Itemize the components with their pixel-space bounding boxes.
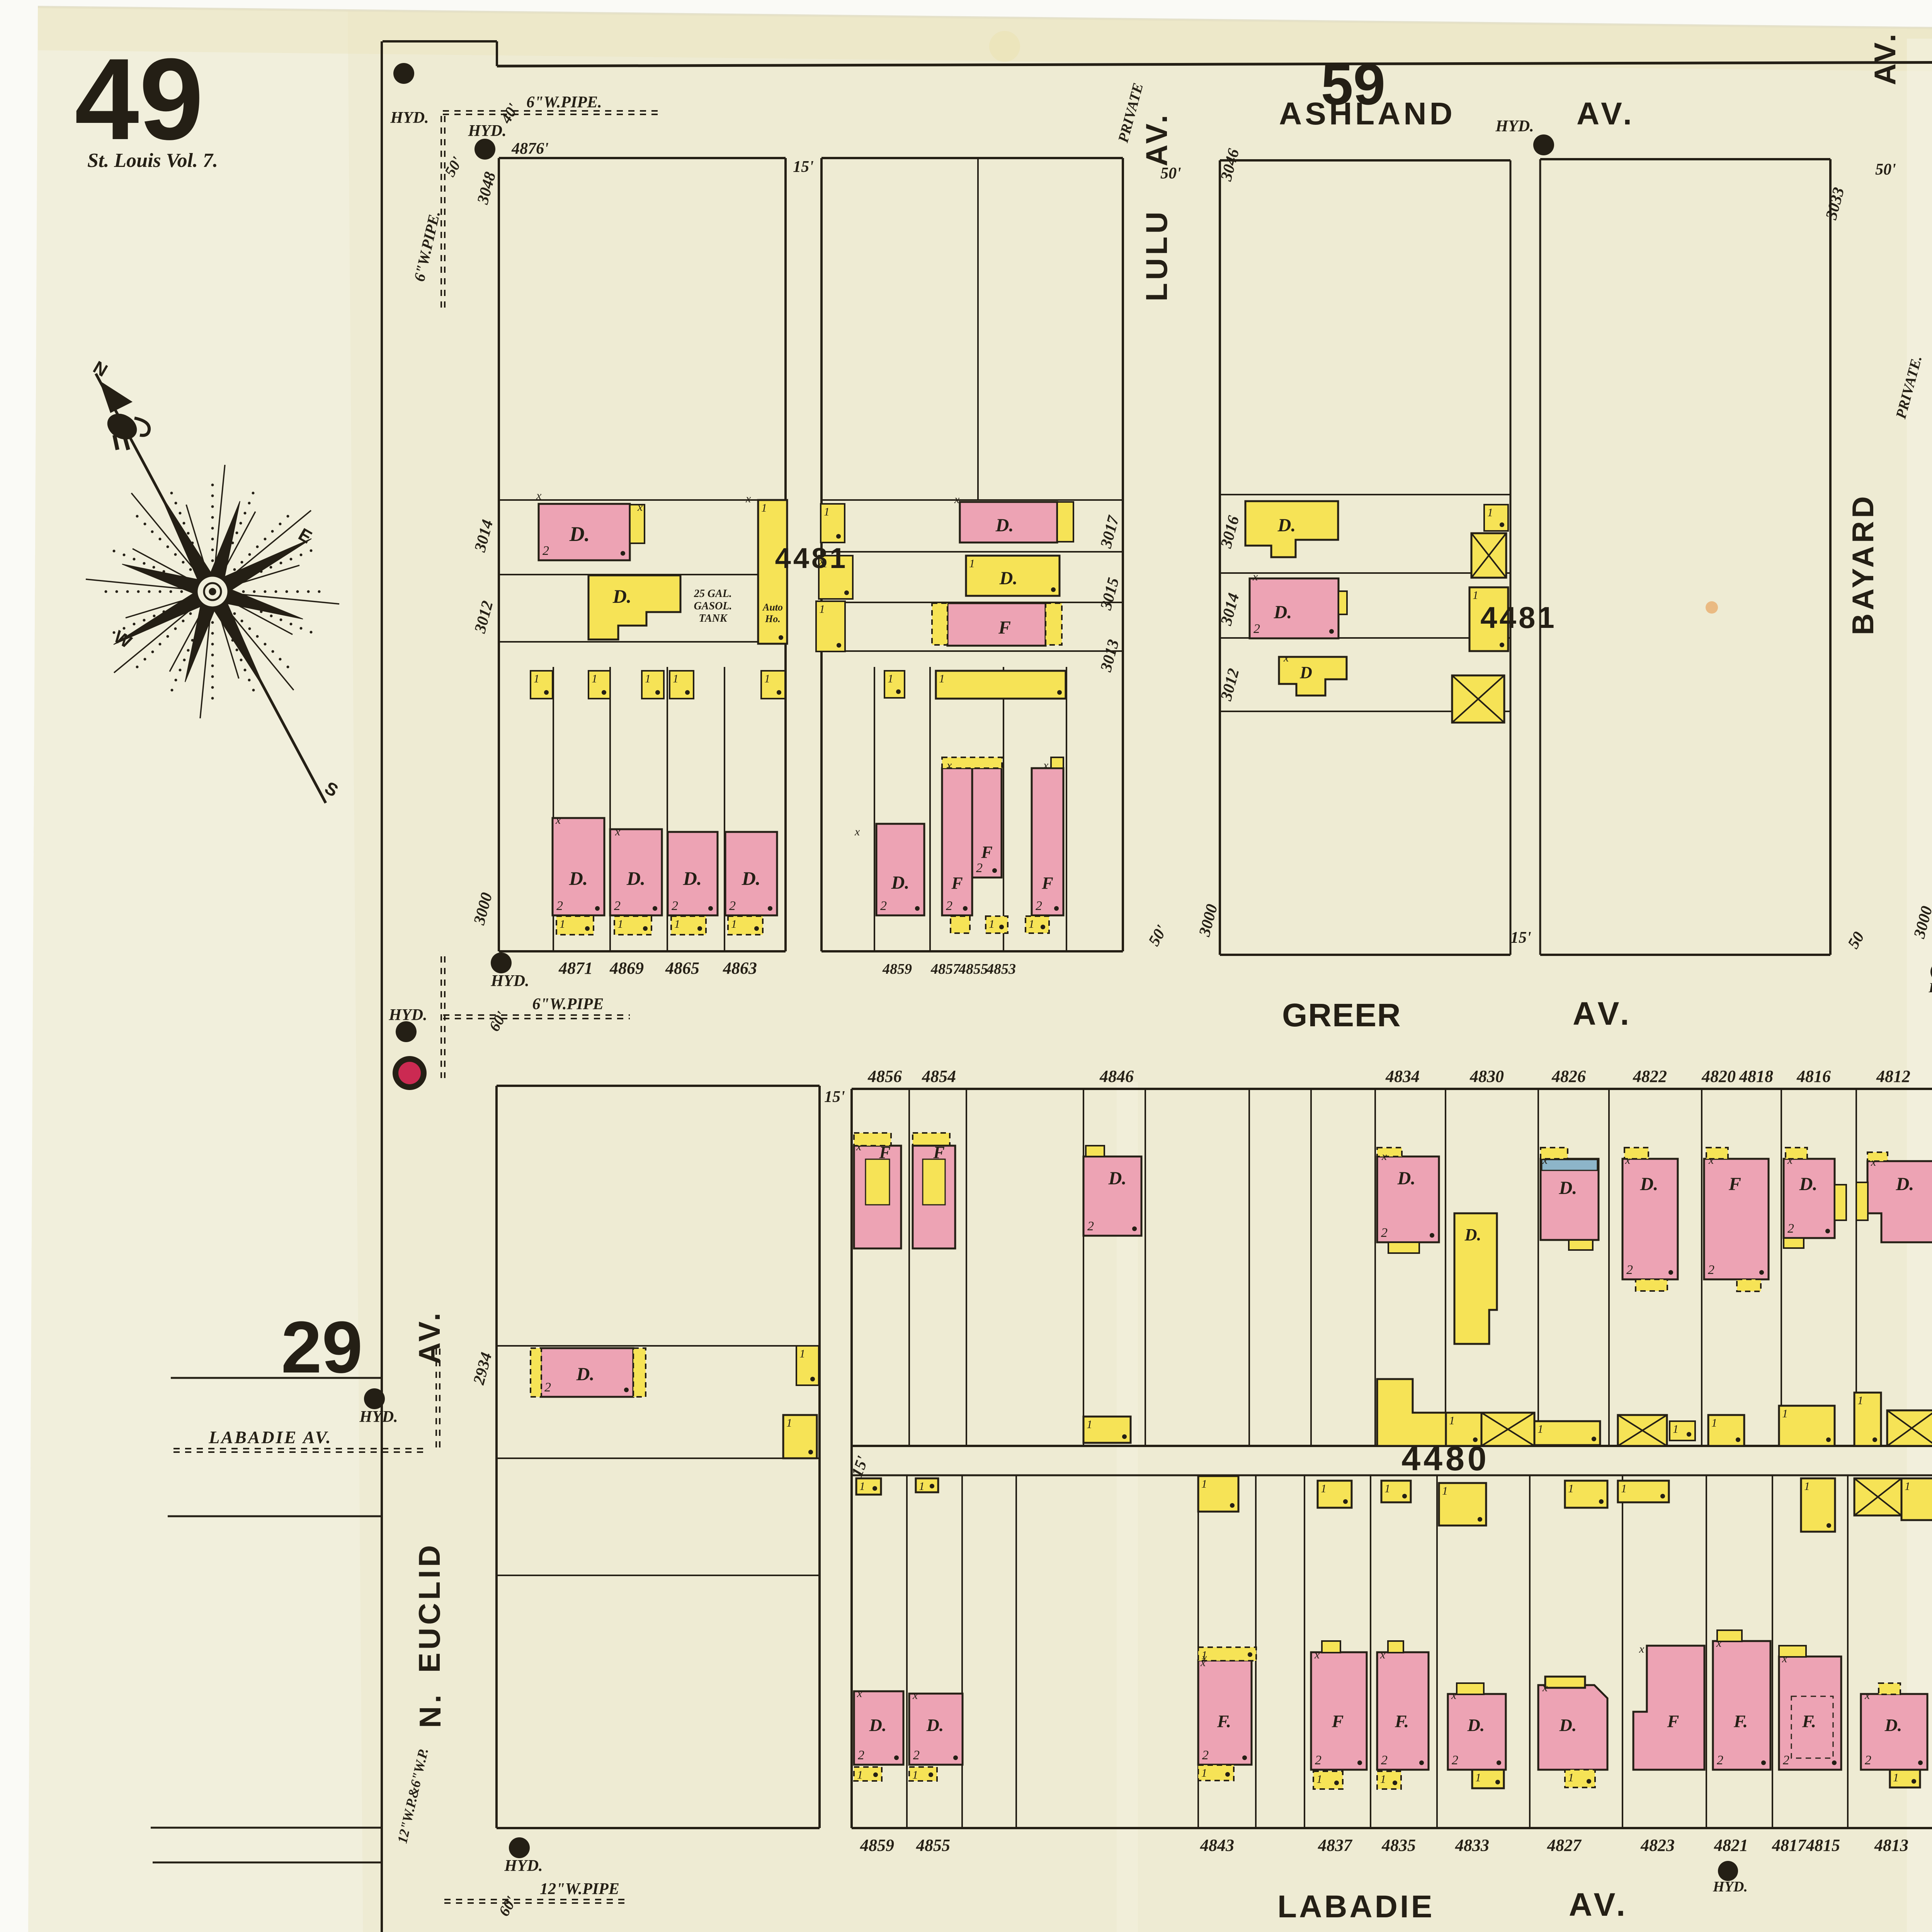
svg-text:2: 2 (556, 899, 563, 913)
svg-text:D.: D. (569, 522, 590, 546)
svg-text:x: x (1043, 759, 1049, 772)
svg-text:x: x (854, 825, 860, 838)
svg-text:2: 2 (1036, 899, 1042, 913)
svg-text:2: 2 (976, 861, 983, 875)
svg-text:1: 1 (674, 918, 680, 930)
svg-text:F.: F. (1733, 1711, 1748, 1731)
svg-text:x: x (615, 825, 621, 838)
svg-text:x: x (536, 489, 542, 502)
svg-text:AV.: AV. (1577, 96, 1636, 131)
svg-text:4815: 4815 (1806, 1836, 1840, 1855)
svg-text:4821: 4821 (1714, 1836, 1748, 1855)
svg-text:HYD.: HYD. (1929, 980, 1932, 995)
svg-text:F: F (1728, 1174, 1741, 1194)
svg-text:4854: 4854 (922, 1067, 956, 1086)
svg-text:F.: F. (1395, 1711, 1409, 1731)
svg-text:D.: D. (1640, 1174, 1658, 1194)
svg-text:4481: 4481 (1480, 600, 1557, 634)
svg-text:2: 2 (672, 899, 678, 913)
svg-text:D.: D. (1464, 1225, 1481, 1244)
svg-text:x: x (1381, 1150, 1387, 1163)
svg-text:1: 1 (1568, 1771, 1574, 1784)
svg-text:D.: D. (612, 585, 632, 607)
svg-text:1: 1 (1442, 1485, 1448, 1497)
svg-text:1: 1 (1487, 506, 1493, 519)
svg-text:D.: D. (576, 1364, 595, 1384)
svg-text:TANK: TANK (699, 612, 728, 624)
svg-text:x: x (857, 1687, 862, 1700)
svg-text:x: x (1451, 1689, 1457, 1702)
svg-text:1: 1 (969, 557, 975, 570)
svg-text:F: F (951, 874, 963, 893)
svg-text:4817: 4817 (1772, 1836, 1807, 1855)
svg-text:2: 2 (1087, 1219, 1094, 1233)
svg-text:4859: 4859 (882, 961, 912, 977)
svg-text:AV.: AV. (1573, 995, 1633, 1032)
svg-text:1: 1 (534, 672, 539, 685)
svg-text:D.: D. (1884, 1715, 1902, 1735)
svg-text:1: 1 (989, 918, 995, 930)
svg-text:4856: 4856 (867, 1067, 902, 1086)
svg-text:2: 2 (880, 899, 887, 913)
svg-text:1: 1 (919, 1480, 925, 1493)
svg-text:LABADIE: LABADIE (1277, 1889, 1434, 1924)
svg-text:50': 50' (1875, 161, 1896, 179)
svg-text:1: 1 (673, 672, 679, 685)
svg-text:1: 1 (1782, 1407, 1788, 1420)
svg-text:4823: 4823 (1640, 1836, 1675, 1855)
svg-text:2: 2 (1202, 1748, 1209, 1762)
svg-text:Auto: Auto (762, 602, 783, 613)
svg-text:F: F (981, 843, 992, 862)
svg-text:4857: 4857 (930, 961, 961, 977)
svg-text:x: x (1380, 1648, 1386, 1661)
svg-text:1: 1 (1087, 1418, 1092, 1431)
svg-text:4853: 4853 (986, 961, 1016, 977)
svg-text:2: 2 (946, 899, 952, 913)
svg-text:4826: 4826 (1551, 1067, 1586, 1086)
svg-text:AV.: AV. (1868, 31, 1902, 85)
svg-text:4818: 4818 (1739, 1067, 1773, 1086)
svg-text:x: x (946, 759, 952, 772)
svg-text:F.: F. (1217, 1711, 1231, 1731)
svg-text:ASHLAND: ASHLAND (1279, 96, 1456, 131)
svg-text:1: 1 (1568, 1482, 1574, 1495)
svg-text:2: 2 (543, 544, 549, 558)
svg-text:1: 1 (645, 672, 651, 685)
svg-text:4481: 4481 (775, 542, 848, 574)
svg-text:1: 1 (1621, 1482, 1627, 1495)
svg-text:2: 2 (1315, 1753, 1321, 1767)
svg-text:GASOL.: GASOL. (694, 600, 732, 612)
svg-text:4865: 4865 (665, 959, 699, 978)
svg-text:D.: D. (926, 1715, 944, 1735)
svg-text:4813: 4813 (1874, 1836, 1908, 1855)
svg-text:4837: 4837 (1318, 1836, 1353, 1855)
svg-text:1: 1 (560, 918, 565, 930)
svg-text:2: 2 (913, 1748, 920, 1762)
svg-text:6"W.PIPE.: 6"W.PIPE. (526, 94, 602, 111)
svg-text:4822: 4822 (1633, 1067, 1667, 1086)
svg-text:HYD.: HYD. (1713, 1879, 1748, 1895)
svg-text:4812: 4812 (1876, 1067, 1910, 1086)
svg-text:D.: D. (1559, 1178, 1577, 1198)
svg-text:x: x (1716, 1637, 1722, 1650)
svg-text:D.: D. (995, 515, 1014, 536)
svg-text:2: 2 (1865, 1753, 1871, 1767)
svg-text:AV.: AV. (1569, 1886, 1629, 1923)
svg-text:4855: 4855 (916, 1836, 950, 1855)
svg-text:D.: D. (891, 872, 910, 893)
svg-text:Ho.: Ho. (765, 613, 781, 624)
svg-text:1: 1 (1673, 1423, 1679, 1435)
svg-text:1: 1 (1473, 589, 1478, 602)
svg-text:x: x (1625, 1154, 1631, 1167)
svg-text:1: 1 (859, 1480, 865, 1493)
svg-text:1: 1 (824, 505, 830, 518)
svg-text:D.: D. (1467, 1715, 1485, 1735)
svg-text:1: 1 (731, 918, 737, 930)
svg-text:4816: 4816 (1796, 1067, 1831, 1086)
svg-text:4833: 4833 (1455, 1836, 1489, 1855)
svg-text:D.: D. (999, 568, 1018, 588)
svg-text:1: 1 (1804, 1480, 1810, 1493)
svg-text:D.: D. (1896, 1174, 1914, 1194)
svg-text:HYD.: HYD. (359, 1408, 398, 1426)
svg-text:D.: D. (742, 867, 761, 889)
svg-text:F: F (1041, 874, 1053, 893)
svg-text:1: 1 (819, 603, 825, 616)
svg-text:x: x (1542, 1154, 1548, 1167)
svg-text:GREER: GREER (1282, 997, 1401, 1033)
svg-text:4876': 4876' (511, 140, 549, 158)
svg-text:D.: D. (869, 1715, 887, 1735)
svg-text:x: x (745, 492, 751, 505)
svg-text:15': 15' (793, 158, 814, 176)
svg-text:6"W.PIPE: 6"W.PIPE (532, 995, 604, 1013)
svg-text:4834: 4834 (1385, 1067, 1420, 1086)
svg-text:1: 1 (592, 672, 597, 685)
svg-text:HYD.: HYD. (388, 1006, 427, 1024)
svg-text:D: D (1299, 663, 1312, 682)
svg-text:4869: 4869 (609, 959, 644, 978)
svg-text:29: 29 (281, 1306, 362, 1388)
svg-text:2: 2 (1381, 1226, 1388, 1240)
svg-text:D.: D. (1277, 515, 1296, 536)
svg-text:2: 2 (1253, 622, 1260, 636)
svg-text:x: x (637, 501, 643, 514)
svg-text:F: F (933, 1143, 944, 1162)
svg-text:1: 1 (1857, 1394, 1863, 1407)
svg-text:HYD.: HYD. (490, 972, 529, 990)
svg-text:1: 1 (1475, 1771, 1481, 1784)
svg-text:2: 2 (614, 899, 621, 913)
svg-text:1: 1 (1449, 1414, 1455, 1427)
svg-text:F: F (1667, 1711, 1679, 1731)
svg-text:1: 1 (1029, 918, 1034, 930)
svg-text:1: 1 (1905, 1480, 1910, 1493)
svg-text:HYD.: HYD. (1495, 117, 1534, 135)
svg-text:4843: 4843 (1200, 1836, 1234, 1855)
svg-text:1: 1 (1201, 1478, 1207, 1490)
svg-text:4827: 4827 (1547, 1836, 1582, 1855)
svg-text:2: 2 (1783, 1753, 1789, 1767)
svg-text:4859: 4859 (860, 1836, 894, 1855)
svg-text:4863: 4863 (723, 959, 757, 978)
svg-text:4830: 4830 (1469, 1067, 1504, 1086)
svg-text:D.: D. (626, 867, 646, 889)
svg-text:x: x (1782, 1652, 1787, 1665)
svg-text:1: 1 (1380, 1773, 1386, 1786)
svg-text:1: 1 (799, 1347, 805, 1360)
svg-text:x: x (1201, 1651, 1207, 1664)
svg-text:LABADIE AV.: LABADIE AV. (208, 1427, 332, 1447)
svg-text:x: x (1871, 1156, 1876, 1168)
svg-text:D.: D. (569, 867, 588, 889)
svg-text:x: x (1708, 1154, 1714, 1167)
svg-text:1: 1 (1711, 1417, 1717, 1429)
svg-text:N.: N. (413, 1692, 447, 1728)
svg-text:2: 2 (1452, 1753, 1458, 1767)
svg-text:4855: 4855 (958, 961, 988, 977)
svg-text:BAYARD: BAYARD (1846, 493, 1880, 635)
svg-text:x: x (1639, 1643, 1645, 1655)
svg-text:HYD.: HYD. (468, 122, 506, 140)
svg-text:x: x (954, 493, 960, 506)
svg-text:D.: D. (1274, 602, 1292, 622)
svg-text:EUCLID: EUCLID (412, 1542, 446, 1673)
svg-text:x: x (1252, 570, 1258, 583)
svg-text:x: x (555, 814, 561, 827)
svg-text:x: x (1542, 1681, 1548, 1694)
svg-text:HYD.: HYD. (390, 109, 429, 127)
svg-text:D.: D. (1799, 1174, 1818, 1194)
svg-text:x: x (1864, 1689, 1870, 1702)
svg-text:25 GAL.: 25 GAL. (694, 588, 732, 600)
svg-text:2: 2 (1717, 1753, 1723, 1767)
svg-text:1: 1 (1321, 1482, 1327, 1495)
svg-text:2: 2 (1381, 1753, 1388, 1767)
svg-text:D.: D. (683, 867, 702, 889)
svg-text:1: 1 (939, 672, 945, 685)
svg-text:AV.: AV. (1139, 112, 1173, 166)
svg-text:1: 1 (764, 672, 770, 685)
svg-text:4820: 4820 (1701, 1067, 1736, 1086)
svg-text:4846: 4846 (1099, 1067, 1134, 1086)
svg-text:x: x (1314, 1648, 1320, 1661)
svg-text:F: F (998, 617, 1011, 638)
svg-text:4871: 4871 (558, 959, 593, 978)
svg-text:15': 15' (824, 1088, 845, 1106)
svg-text:2: 2 (1708, 1263, 1714, 1277)
svg-text:1: 1 (1201, 1767, 1207, 1779)
svg-text:St. Louis Vol. 7.: St. Louis Vol. 7. (87, 150, 218, 172)
svg-text:1: 1 (888, 672, 893, 685)
svg-text:2: 2 (1626, 1263, 1633, 1277)
svg-text:1: 1 (786, 1417, 792, 1429)
svg-text:1: 1 (761, 502, 767, 514)
svg-text:1: 1 (1316, 1773, 1322, 1786)
svg-text:D.: D. (1108, 1168, 1127, 1189)
svg-text:2: 2 (544, 1380, 551, 1395)
svg-text:12"W.PIPE: 12"W.PIPE (540, 1880, 619, 1898)
svg-text:x: x (856, 1140, 862, 1153)
svg-text:4835: 4835 (1381, 1836, 1416, 1855)
svg-text:50': 50' (1160, 165, 1181, 182)
svg-text:D.: D. (1559, 1715, 1577, 1735)
svg-text:1: 1 (857, 1769, 863, 1781)
svg-text:1: 1 (1893, 1771, 1899, 1784)
svg-text:1: 1 (1384, 1482, 1390, 1495)
svg-text:HYD.: HYD. (504, 1857, 543, 1875)
svg-text:x: x (1787, 1154, 1793, 1167)
svg-text:2: 2 (858, 1748, 864, 1762)
svg-text:1: 1 (912, 1769, 918, 1781)
svg-text:LULU: LULU (1139, 209, 1173, 301)
svg-text:49: 49 (75, 34, 204, 164)
svg-text:1: 1 (1537, 1423, 1543, 1435)
svg-text:D.: D. (1397, 1168, 1416, 1189)
svg-text:x: x (912, 1689, 918, 1702)
svg-text:AV.: AV. (412, 1310, 446, 1364)
svg-text:15': 15' (1510, 929, 1531, 947)
svg-text:1: 1 (617, 918, 623, 930)
svg-text:2: 2 (729, 899, 736, 913)
svg-text:2: 2 (1787, 1221, 1794, 1236)
svg-text:x: x (1283, 651, 1289, 664)
svg-text:F.: F. (1802, 1711, 1816, 1731)
svg-text:F: F (1332, 1711, 1344, 1731)
